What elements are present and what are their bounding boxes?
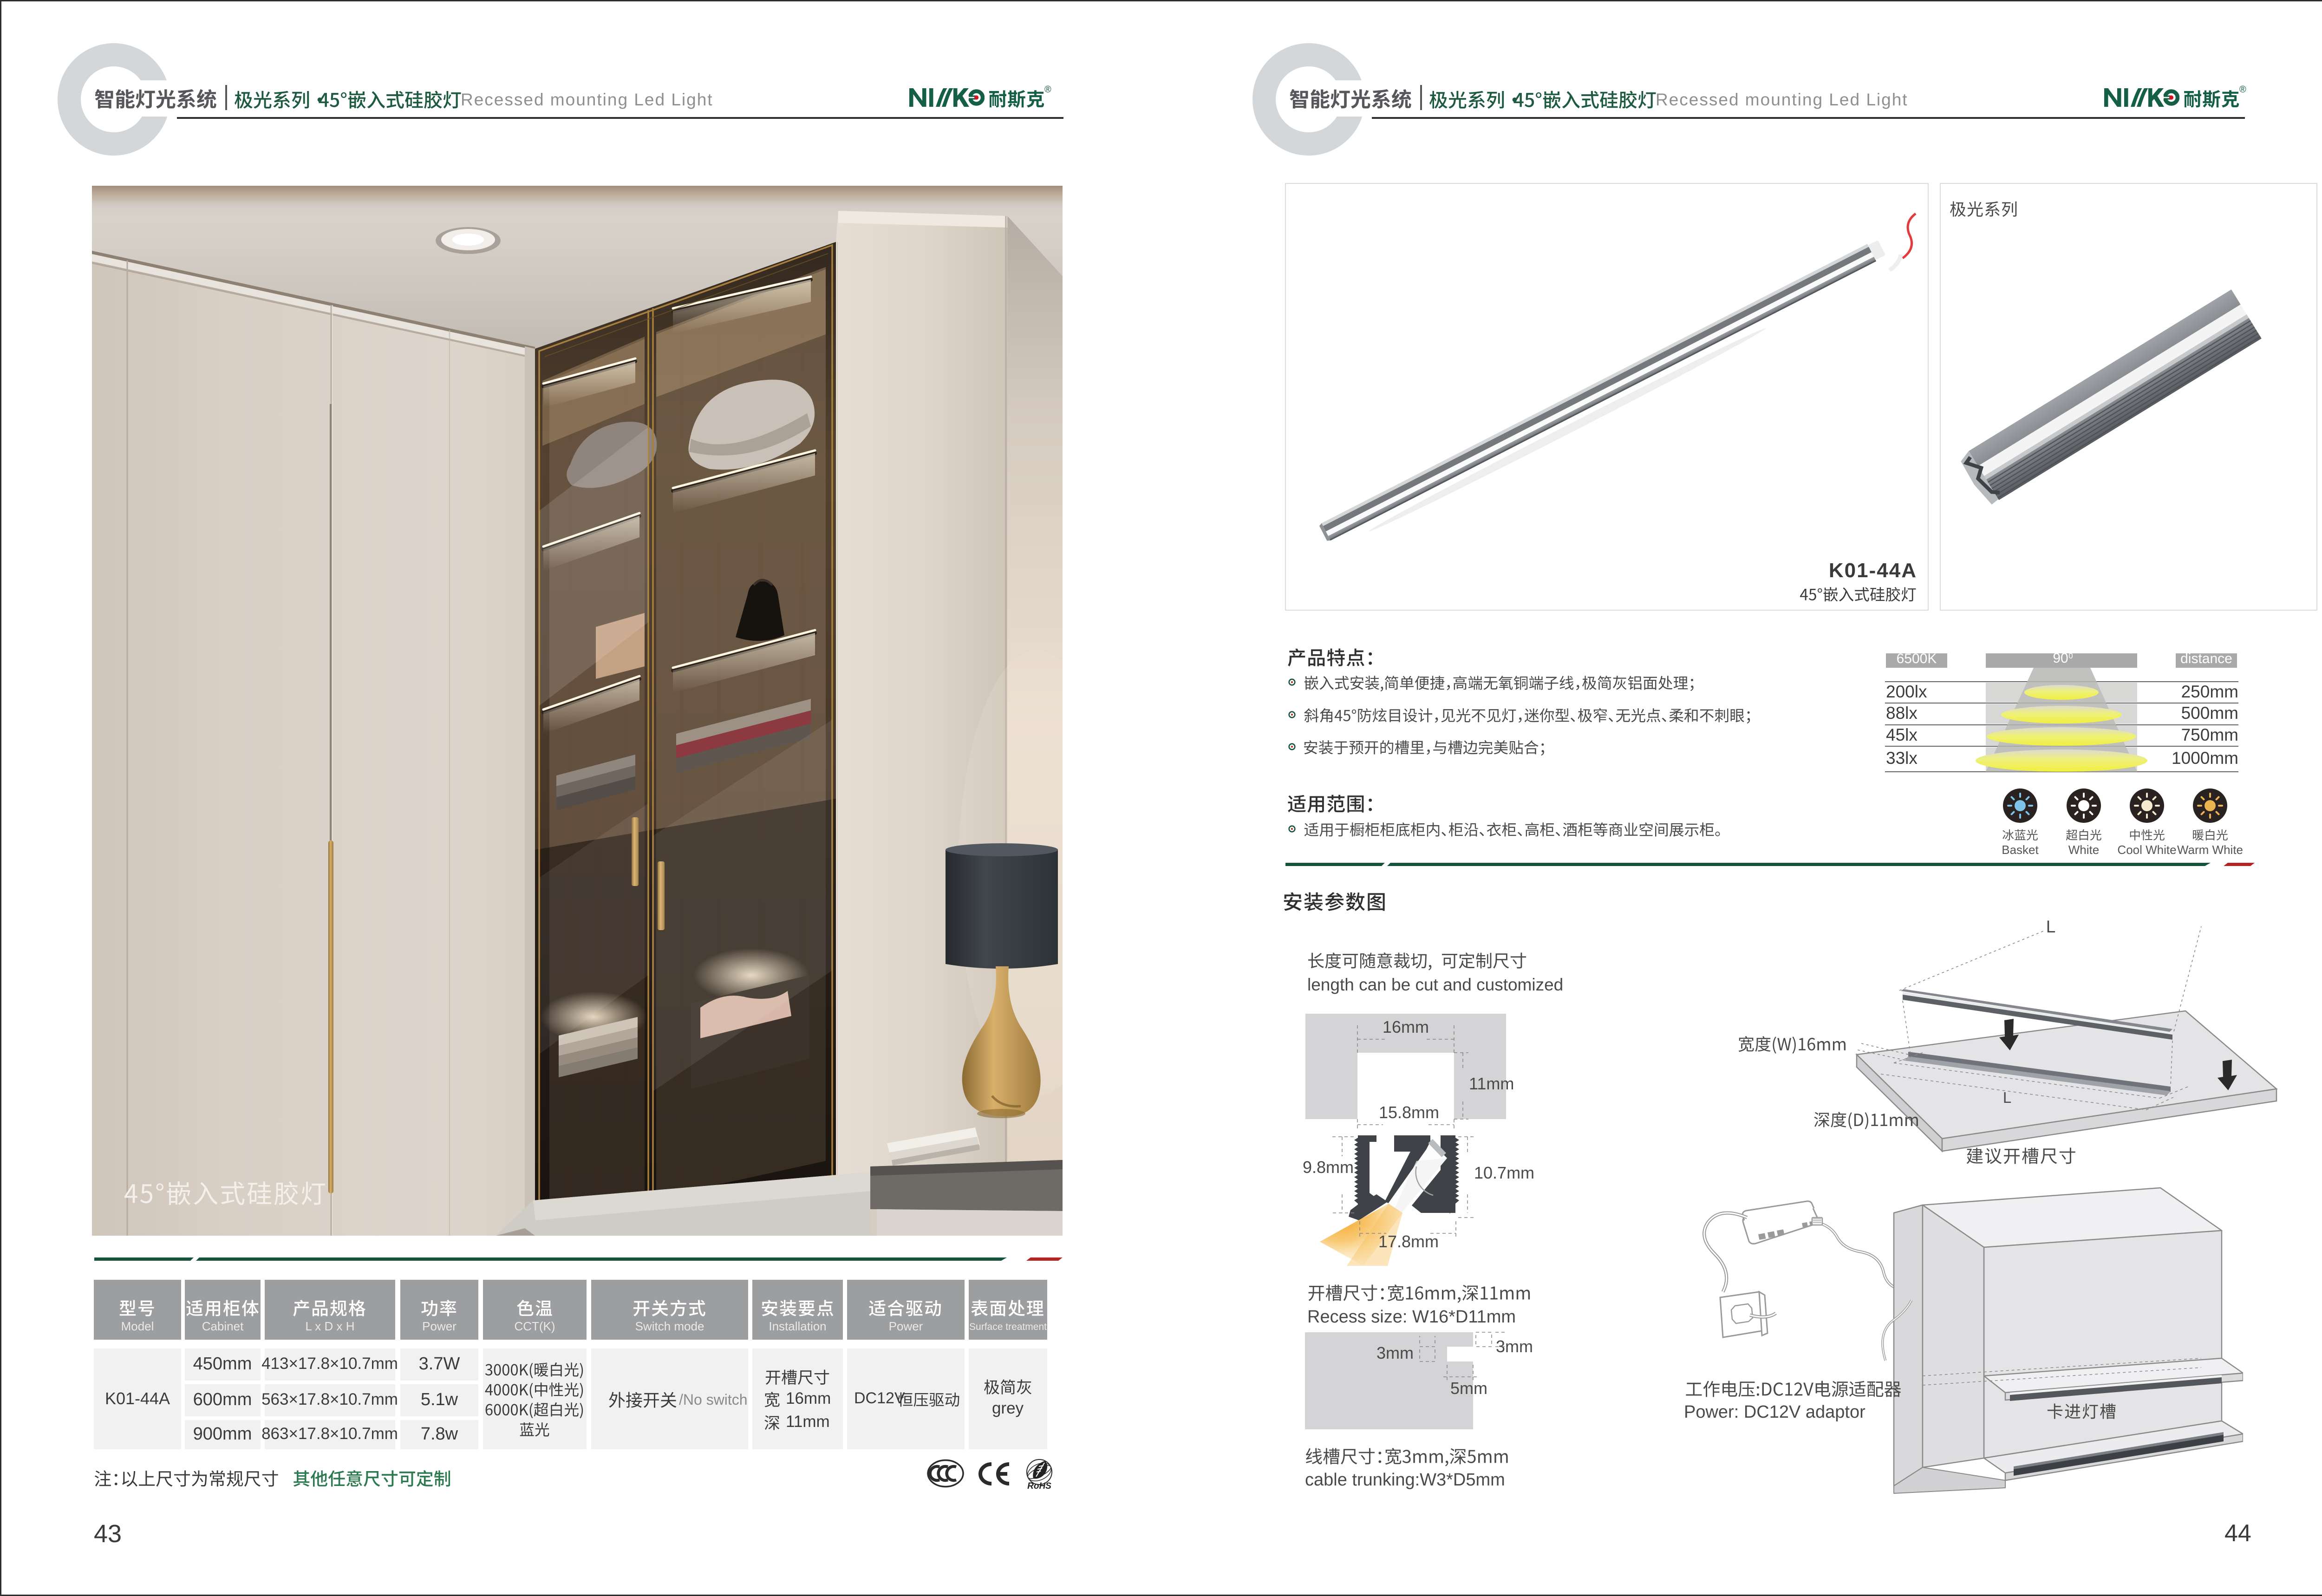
- svg-text:RoHS: RoHS: [1027, 1481, 1051, 1491]
